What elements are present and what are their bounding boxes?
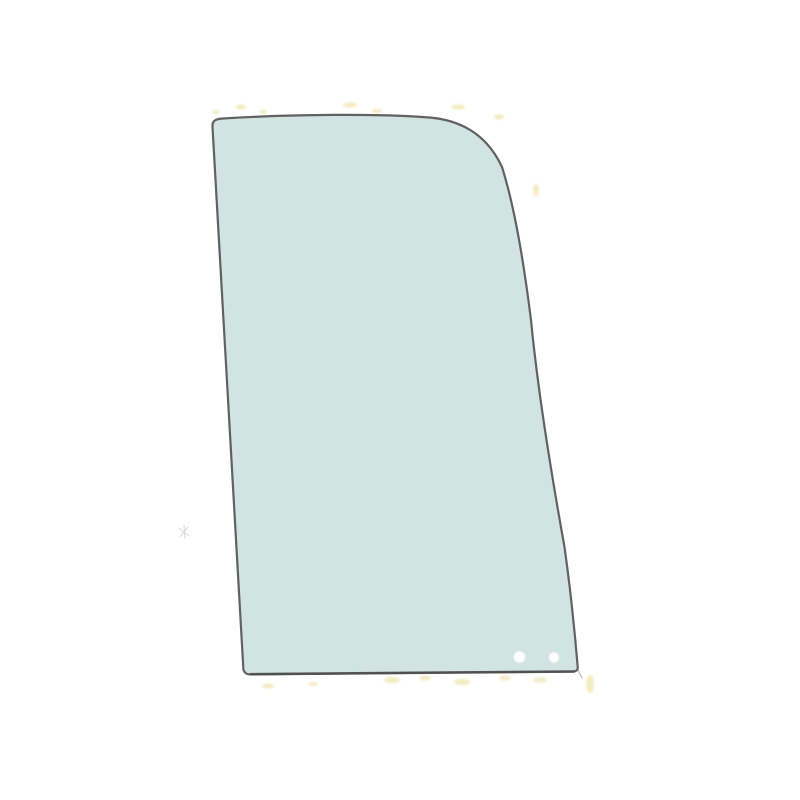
jpeg-speck xyxy=(236,105,246,110)
glass-panel-shape xyxy=(212,115,577,675)
jpeg-speck xyxy=(384,677,400,683)
mounting-hole-right xyxy=(549,652,559,662)
jpeg-speck xyxy=(212,110,220,114)
jpeg-speck xyxy=(308,682,318,686)
jpeg-speck xyxy=(533,678,547,683)
jpeg-speck xyxy=(454,679,470,685)
mounting-hole-left xyxy=(514,651,526,663)
jpeg-speck xyxy=(262,684,274,689)
jpeg-speck xyxy=(259,110,267,114)
jpeg-speck xyxy=(419,676,431,681)
jpeg-speck xyxy=(499,676,511,681)
jpeg-speck xyxy=(451,105,465,110)
jpeg-speck xyxy=(494,115,504,120)
glass-corner-spur xyxy=(578,671,582,679)
product-photo-canvas xyxy=(0,0,800,800)
jpeg-speck xyxy=(343,103,357,108)
glass-panel-illustration xyxy=(0,0,800,800)
jpeg-speck xyxy=(586,675,594,693)
jpeg-speck xyxy=(372,109,382,113)
jpeg-speck xyxy=(533,184,539,196)
background-smudge xyxy=(179,525,189,539)
